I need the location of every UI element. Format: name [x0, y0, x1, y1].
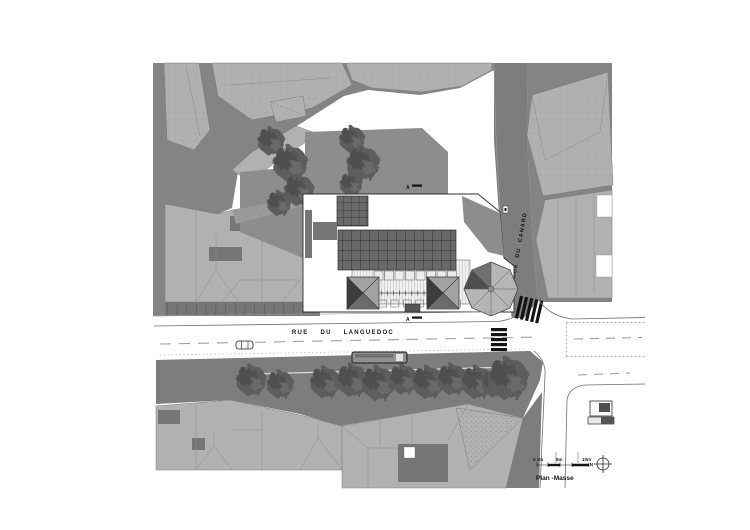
site-plan-page: RUE DU CANARD: [0, 0, 750, 530]
glass-roof-large: [338, 230, 456, 270]
tree: [236, 365, 266, 395]
rue-du-languedoc-label: RUE DU LANGUEDOC: [292, 330, 394, 336]
tree: [273, 146, 308, 181]
site-plan-drawing: RUE DU CANARD: [0, 0, 750, 530]
north-east-block: [527, 63, 613, 302]
stair-block: [405, 304, 420, 312]
tree: [340, 173, 363, 196]
kiosk: [588, 401, 614, 424]
plan-title: Plan -Masse: [536, 475, 574, 482]
tree: [310, 367, 340, 397]
bus: [352, 352, 407, 363]
section-letter: A: [406, 317, 410, 323]
north-compass: N: [590, 455, 612, 473]
scale-five-label: 5m: [556, 457, 563, 462]
scale-zero-label: 0 1m: [533, 457, 543, 462]
tree: [267, 191, 291, 215]
project-building: [303, 194, 518, 316]
turret-roof-left: [347, 277, 379, 309]
section-letter: A: [406, 185, 410, 191]
car: [236, 341, 253, 349]
rue-du-languedoc-street: RUE DU LANGUEDOC: [154, 312, 540, 355]
north-label: N: [590, 462, 593, 467]
tree: [488, 358, 529, 399]
tree: [267, 371, 294, 398]
glass-roof-small: [337, 196, 368, 226]
section-marker-bottom: A: [406, 317, 422, 324]
octagon-tower-roof: [464, 262, 518, 316]
turret-roof-right: [427, 277, 459, 309]
